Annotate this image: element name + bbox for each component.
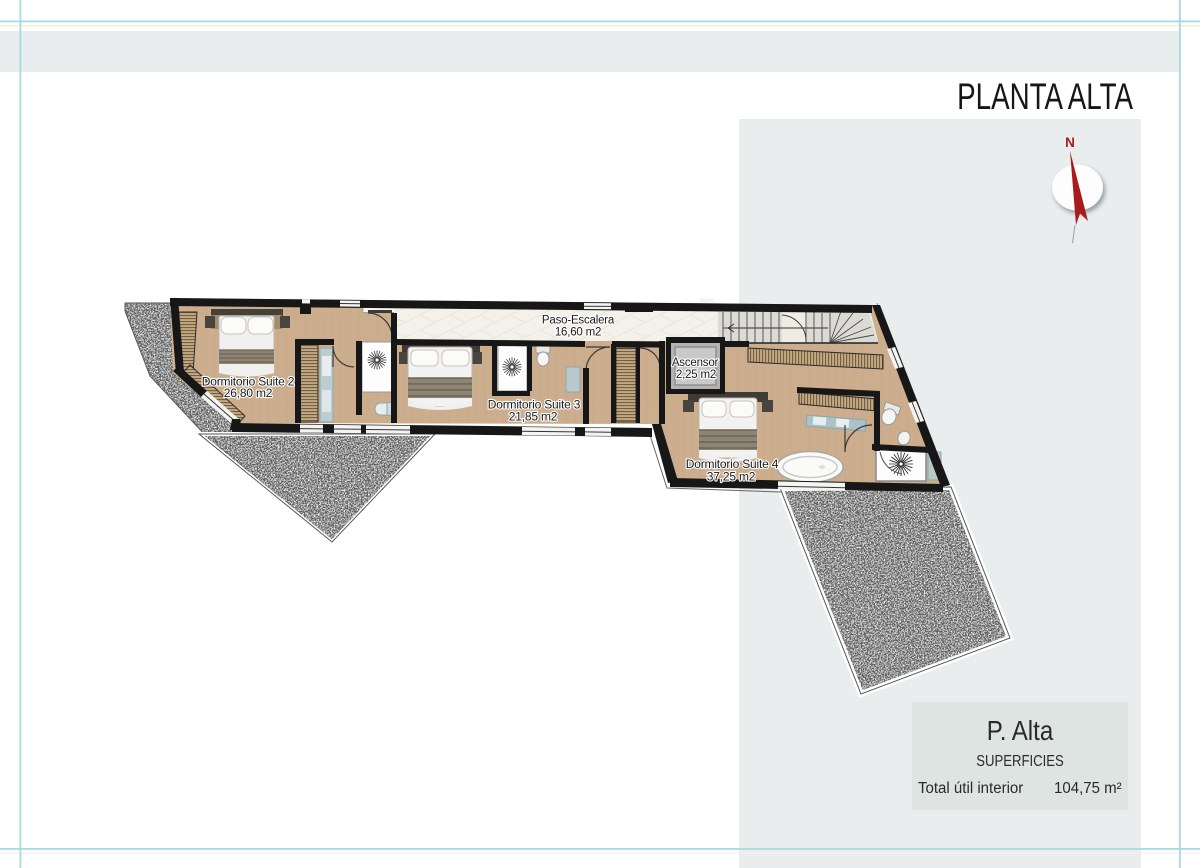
svg-text:Paso-Escalera: Paso-Escalera [542, 315, 615, 327]
svg-text:N: N [1065, 135, 1075, 150]
svg-text:37,25 m2: 37,25 m2 [707, 470, 756, 484]
svg-text:2,25 m2: 2,25 m2 [676, 369, 716, 381]
svg-text:21,85 m2: 21,85 m2 [509, 410, 558, 424]
svg-text:Ascensor: Ascensor [672, 357, 719, 369]
svg-text:16,60 m2: 16,60 m2 [555, 327, 601, 339]
svg-text:26,80 m2: 26,80 m2 [224, 386, 273, 400]
